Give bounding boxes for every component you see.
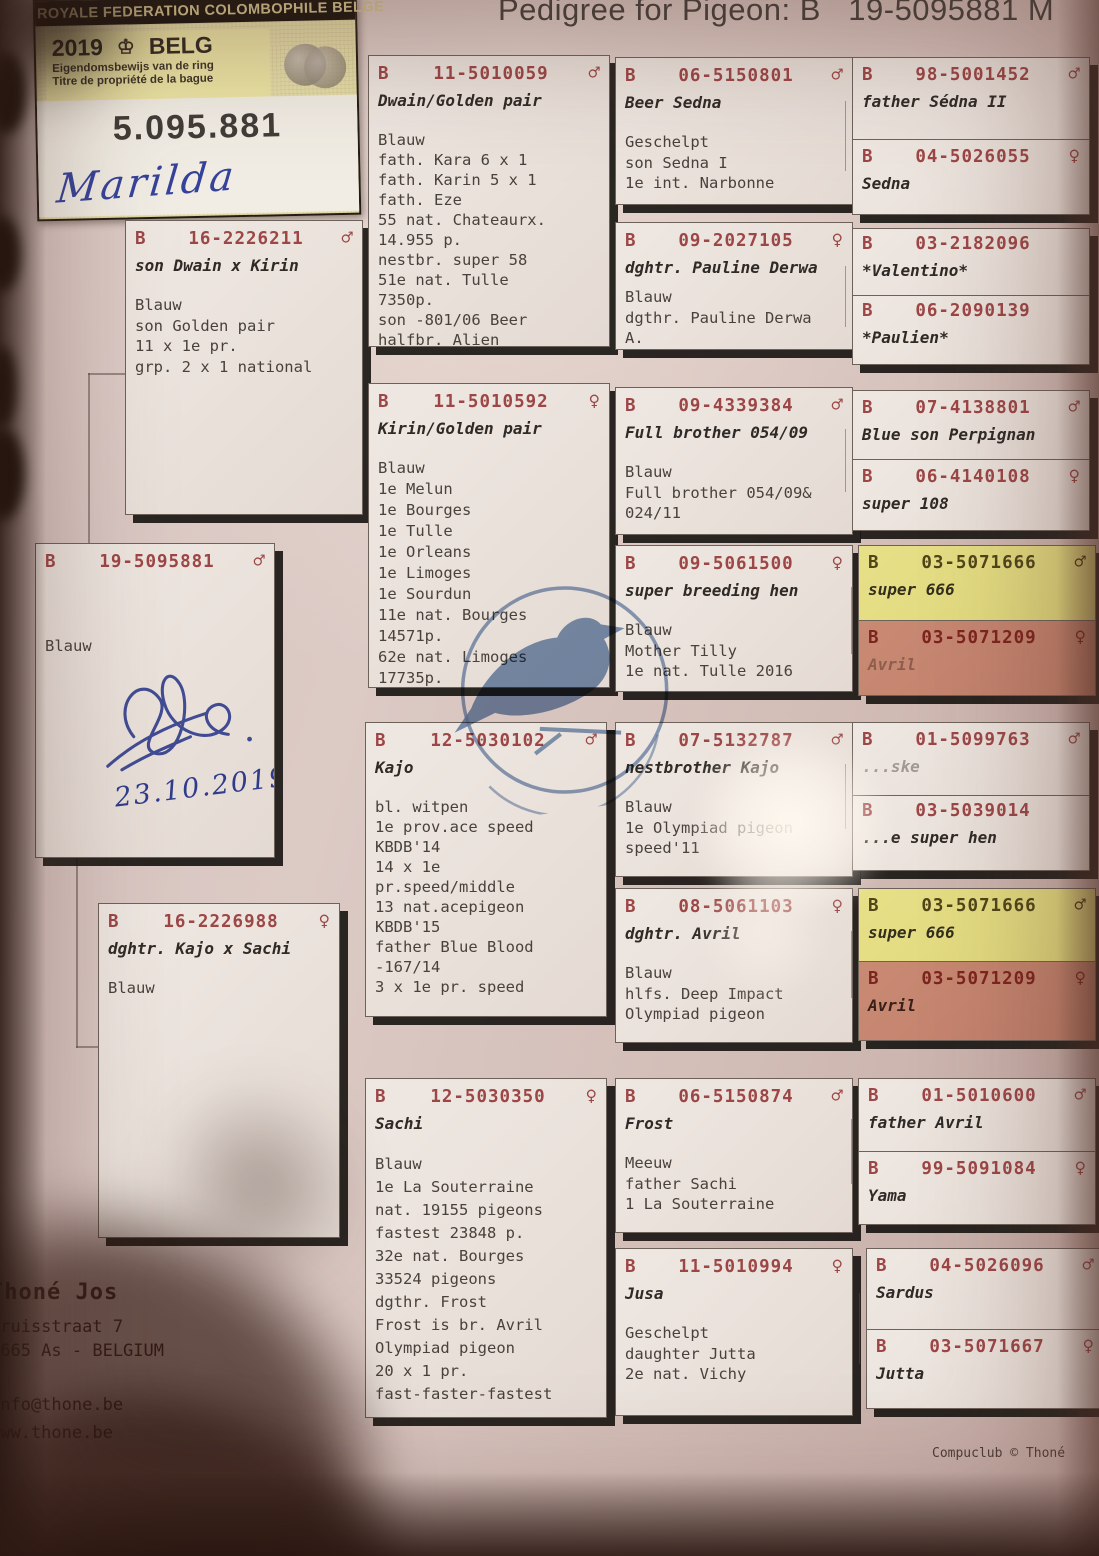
pigeon-details: Blauw son Golden pair 11 x 1e pr. grp. 2… — [135, 295, 353, 377]
ring-number: 01-5010600 — [894, 1086, 1064, 1106]
pigeon-name: father Avril — [868, 1113, 1086, 1132]
pigeon-name: Sardus — [876, 1283, 1094, 1302]
ring-number-panel: 5.095.881 Marilda — [37, 95, 359, 218]
owner-contact: info@thone.be www.thone.be — [0, 1391, 164, 1447]
pigeon-name: *Valentino* — [862, 261, 1080, 280]
country-code: B — [862, 147, 888, 167]
connector-line — [76, 858, 78, 1048]
pigeon-name: Avril — [868, 655, 1086, 674]
ring-row: B16-2226988♀ — [108, 910, 330, 932]
ring-number: 5.095.881 — [37, 105, 358, 151]
pigeon-name: Blue son Perpignan — [862, 425, 1080, 444]
pigeon-name: dghtr. Kajo x Sachi — [108, 939, 330, 958]
ring-row: B06-5150874♂ — [625, 1085, 843, 1107]
ring-number: 16-2226211 — [161, 229, 331, 249]
country-code: B — [45, 552, 71, 572]
pedigree-box-main: B19-5095881♂ Blauw 23.10.2019 — [35, 543, 275, 858]
ring-number: 08-5061103 — [651, 897, 821, 917]
pigeon-name: Full brother 054/09 — [625, 423, 843, 442]
pigeon-name: Frost — [625, 1114, 843, 1133]
male-icon: ♂ — [1064, 894, 1086, 916]
country-code: B — [625, 231, 651, 251]
country-code: B — [862, 234, 888, 254]
ring-number: 03-2182096 — [888, 234, 1058, 254]
gen4-pair-sedna: B98-5001452♂ father Sédna II B04-5026055… — [852, 57, 1090, 215]
ring-number: 98-5001452 — [888, 65, 1058, 85]
owner-name: Thoné Jos — [0, 1280, 164, 1305]
female-icon: ♀ — [821, 552, 843, 574]
ring-number: 12-5030350 — [401, 1087, 575, 1107]
gen4-pair-sardus: B04-5026096♂ Sardus B03-5071667♀ Jutta — [866, 1248, 1099, 1409]
ring-number: 09-4339384 — [651, 396, 821, 416]
ring-row: B11-5010994♀ — [625, 1255, 843, 1277]
male-icon: ♂ — [821, 729, 843, 751]
pigeon-name: Sedna — [862, 174, 1080, 193]
ring-number: 04-5026055 — [888, 147, 1058, 167]
ring-number: 01-5099763 — [888, 730, 1058, 750]
ring-row: B09-2027105♀ — [625, 229, 843, 251]
country-code: B — [375, 1087, 401, 1107]
country-code: B — [862, 801, 888, 821]
ring-row: B07-4138801♂ — [862, 396, 1080, 418]
country-code: B — [876, 1337, 902, 1357]
ring-number: 06-5150801 — [651, 66, 821, 86]
pedigree-box-sachi: B12-5030350♀ Sachi Blauw 1e La Souterrai… — [365, 1078, 607, 1418]
federation-header: ROYALE FEDERATION COLOMBOPHILE BELGE — [35, 0, 355, 26]
stamp-branch — [532, 718, 622, 754]
pigeon-name: Avril — [868, 996, 1086, 1015]
pigeon-details: Geschelpt son Sedna I 1e int. Narbonne — [625, 132, 843, 194]
pedigree-box-beer-sedna: B06-5150801♂ Beer Sedna Geschelpt son Se… — [615, 57, 853, 205]
pigeon-details: Blauw Full brother 054/09& 024/11 — [625, 462, 843, 524]
pigeon-name: Dwain/Golden pair — [378, 91, 600, 110]
pedigree-box-perpignan: B07-4138801♂ Blue son Perpignan — [852, 390, 1090, 460]
female-icon: ♀ — [1072, 1335, 1094, 1357]
ring-number: 03-5071667 — [902, 1337, 1072, 1357]
ring-row: B03-5071666♂ — [868, 551, 1086, 573]
country-code: B — [868, 628, 894, 648]
male-icon: ♂ — [1064, 1084, 1086, 1106]
gen4-pair-super666-b: B03-5071666♂ super 666 B03-5071209♀ Avri… — [858, 888, 1096, 1041]
country-code: B — [876, 1256, 902, 1276]
pedigree-box-dwain: B11-5010059♂ Dwain/Golden pair Blauw fat… — [368, 55, 610, 347]
pedigree-box-valentino: B03-2182096 *Valentino* — [852, 228, 1090, 296]
pedigree-box-fullbrother: B09-4339384♂ Full brother 054/09 Blauw F… — [615, 387, 853, 535]
gen4-pair-perpignan: B07-4138801♂ Blue son Perpignan B06-4140… — [852, 390, 1090, 531]
ring-row: B09-4339384♂ — [625, 394, 843, 416]
female-icon: ♀ — [821, 895, 843, 917]
male-icon: ♂ — [1064, 551, 1086, 573]
ring-number: 06-2090139 — [888, 301, 1058, 321]
male-icon: ♂ — [331, 227, 353, 249]
ring-number: 99-5091084 — [894, 1159, 1064, 1179]
pedigree-box-super666-b: B03-5071666♂ super 666 — [858, 888, 1096, 962]
pigeon-stamp-icon — [400, 555, 730, 829]
pigeon-name: dghtr. Pauline Derwa — [625, 258, 843, 277]
male-icon: ♂ — [821, 1085, 843, 1107]
ring-row: B03-5039014 — [862, 801, 1080, 821]
pigeon-details: Blauw hlfs. Deep Impact Olympiad pigeon — [625, 963, 843, 1025]
pedigree-box-5039014: B03-5039014 ...e super hen — [852, 795, 1090, 871]
ring-row: B03-5071667♀ — [876, 1335, 1094, 1357]
female-icon: ♀ — [1058, 145, 1080, 167]
ring-row: B03-5071209♀ — [868, 967, 1086, 989]
crown-icon: ♔ — [117, 34, 135, 59]
pigeon-details: bl. witpen 1e prov.ace speed KBDB'14 14 … — [375, 797, 597, 997]
pigeon-name: dghtr. Avril — [625, 924, 843, 943]
ring-row: B99-5091084♀ — [868, 1157, 1086, 1179]
ring-row: B11-5010592♀ — [378, 390, 600, 412]
pigeon-details: Blauw 1e Olympiad pigeon speed'11 — [625, 797, 843, 859]
pigeon-details: Geschelpt daughter Jutta 2e nat. Vichy — [625, 1323, 843, 1385]
ring-row: B03-2182096 — [862, 234, 1080, 254]
connector-line — [88, 373, 90, 545]
ring-number: 03-5071209 — [894, 969, 1064, 989]
pigeon-name: super 666 — [868, 580, 1086, 599]
ring-row: B11-5010059♂ — [378, 62, 600, 84]
male-icon: ♂ — [1072, 1254, 1094, 1276]
pedigree-box-paulien: B06-2090139 *Paulien* — [852, 295, 1090, 365]
pigeon-details: Blauw dgthr. Pauline Derwa A. — [625, 287, 843, 349]
pigeon-name: *Paulien* — [862, 328, 1080, 347]
pedigree-box-yama: B99-5091084♀ Yama — [858, 1151, 1096, 1225]
country-code: B — [868, 1086, 894, 1106]
ring-row: B98-5001452♂ — [862, 63, 1080, 85]
pigeon-name: Jutta — [876, 1364, 1094, 1383]
pedigree-photo: Pedigree for Pigeon: B 19-5095881 M ROYA… — [0, 0, 1099, 1556]
ring-row: B03-5071209♀ — [868, 626, 1086, 648]
pedigree-box-super108: B06-4140108♀ super 108 — [852, 459, 1090, 531]
country-code: B — [862, 467, 888, 487]
country-code: B — [135, 229, 161, 249]
female-icon: ♀ — [1064, 626, 1086, 648]
country-code: B — [868, 896, 894, 916]
connector-line — [76, 1046, 100, 1048]
country-code: B — [862, 301, 888, 321]
female-icon: ♀ — [578, 390, 600, 412]
ring-number: 11-5010059 — [404, 64, 578, 84]
pedigree-box-sedna2-father: B98-5001452♂ father Sédna II — [852, 57, 1090, 140]
country-code: B — [625, 66, 651, 86]
country-code: B — [378, 64, 404, 84]
pedigree-box-5099763: B01-5099763♂ ...ske — [852, 722, 1090, 796]
male-icon: ♂ — [821, 64, 843, 86]
gen4-pair-5099763: B01-5099763♂ ...ske B03-5039014 ...e sup… — [852, 722, 1090, 871]
pedigree-box-pauline: B09-2027105♀ dghtr. Pauline Derwa Blauw … — [615, 222, 853, 350]
pigeon-name: ...ske — [862, 757, 1080, 776]
ring-number: 06-5150874 — [651, 1087, 821, 1107]
foreground-object — [0, 216, 20, 292]
country-code: B — [375, 731, 401, 751]
pedigree-box-father: B16-2226211♂ son Dwain x Kirin Blauw son… — [125, 220, 363, 515]
pedigree-box-avril-b: B03-5071209♀ Avril — [858, 961, 1096, 1041]
pigeon-silhouette — [441, 612, 636, 732]
gen4-pair-avril-father: B01-5010600♂ father Avril B99-5091084♀ Y… — [858, 1078, 1096, 1225]
pedigree-box-sedna: B04-5026055♀ Sedna — [852, 139, 1090, 215]
pigeon-name: Yama — [868, 1186, 1086, 1205]
country-code: B — [625, 1087, 651, 1107]
pedigree-box-frost: B06-5150874♂ Frost Meeuw father Sachi 1 … — [615, 1078, 853, 1233]
ring-row: B19-5095881♂ — [45, 550, 265, 572]
female-icon: ♀ — [575, 1085, 597, 1107]
female-icon: ♀ — [821, 1255, 843, 1277]
female-icon: ♀ — [1064, 1157, 1086, 1179]
pedigree-box-avril-a: B03-5071209♀ Avril — [858, 620, 1096, 696]
medal-stamp-icon — [284, 43, 347, 90]
country-code: B — [862, 65, 888, 85]
pigeon-name: ...e super hen — [862, 828, 1080, 847]
pigeon-details: Meeuw father Sachi 1 La Souterraine — [625, 1153, 843, 1215]
country-code: B — [868, 1159, 894, 1179]
male-icon: ♂ — [578, 62, 600, 84]
ring-number: 16-2226988 — [134, 912, 308, 932]
male-icon: ♂ — [821, 394, 843, 416]
pigeon-details: Blauw — [108, 978, 330, 999]
female-icon: ♀ — [821, 229, 843, 251]
pedigree-box-jusa: B11-5010994♀ Jusa Geschelpt daughter Jut… — [615, 1248, 853, 1416]
ring-number: 03-5071666 — [894, 896, 1064, 916]
ring-number: 07-4138801 — [888, 398, 1058, 418]
connector-line — [88, 373, 128, 375]
pigeon-name: Beer Sedna — [625, 93, 843, 112]
ring-row: B08-5061103♀ — [625, 895, 843, 917]
gen4-pair-valentino: B03-2182096 *Valentino* B06-2090139 *Pau… — [852, 228, 1090, 365]
male-icon: ♂ — [1058, 728, 1080, 750]
pigeon-name: Sachi — [375, 1114, 597, 1133]
male-icon: ♂ — [1058, 396, 1080, 418]
photo-edge-shadow — [0, 1472, 1099, 1556]
ring-number: 11-5010592 — [404, 392, 578, 412]
ring-number: 03-5071666 — [894, 553, 1064, 573]
ring-year: 2019 — [51, 34, 103, 62]
pigeon-details: Blauw fath. Kara 6 x 1 fath. Karin 5 x 1… — [378, 130, 600, 347]
female-icon: ♀ — [1064, 967, 1086, 989]
pigeon-details: Blauw 1e La Souterraine nat. 19155 pigeo… — [375, 1153, 597, 1406]
foreground-object — [0, 346, 16, 428]
pigeon-name: super 108 — [862, 494, 1080, 513]
pigeon-name: Kirin/Golden pair — [378, 419, 600, 438]
female-icon: ♀ — [1058, 465, 1080, 487]
pigeon-name: father Sédna II — [862, 92, 1080, 111]
pedigree-box-avril-father: B01-5010600♂ father Avril — [858, 1078, 1096, 1152]
ring-country: BELG — [149, 32, 213, 60]
ring-row: B12-5030350♀ — [375, 1085, 597, 1107]
country-code: B — [862, 398, 888, 418]
ring-number: 06-4140108 — [888, 467, 1058, 487]
male-icon: ♂ — [243, 550, 265, 572]
country-code: B — [868, 969, 894, 989]
pedigree-box-sardus: B04-5026096♂ Sardus — [866, 1248, 1099, 1330]
pedigree-box-mother: B16-2226988♀ dghtr. Kajo x Sachi Blauw — [98, 903, 340, 1238]
ring-number: 04-5026096 — [902, 1256, 1072, 1276]
country-code: B — [108, 912, 134, 932]
male-icon: ♂ — [1058, 63, 1080, 85]
ring-card-band: 2019 ♔ BELG Eigendomsbewijs van de ring … — [45, 28, 270, 103]
country-code: B — [625, 897, 651, 917]
country-code: B — [625, 396, 651, 416]
signature-scribble — [96, 654, 266, 784]
ring-ownership-card: ROYALE FEDERATION COLOMBOPHILE BELGE 201… — [33, 0, 362, 221]
foreground-object — [0, 428, 24, 520]
ring-row: B06-2090139 — [862, 301, 1080, 321]
owner-address: Kruisstraat 7 3665 As - BELGIUM — [0, 1315, 164, 1363]
country-code: B — [862, 730, 888, 750]
country-code: B — [868, 553, 894, 573]
pedigree-box-jutta: B03-5071667♀ Jutta — [866, 1329, 1099, 1409]
pigeon-name: super 666 — [868, 923, 1086, 942]
ring-row: B03-5071666♂ — [868, 894, 1086, 916]
owner-block: Thoné Jos Kruisstraat 7 3665 As - BELGIU… — [0, 1280, 164, 1447]
ring-number: 03-5039014 — [888, 801, 1058, 821]
ring-year-row: 2019 ♔ BELG — [51, 31, 264, 62]
ring-number: 11-5010994 — [651, 1257, 821, 1277]
ring-row: B04-5026096♂ — [876, 1254, 1094, 1276]
ring-row: B01-5010600♂ — [868, 1084, 1086, 1106]
ring-row: B06-4140108♀ — [862, 465, 1080, 487]
country-code: B — [378, 392, 404, 412]
pigeon-name: son Dwain x Kirin — [135, 256, 353, 275]
pedigree-box-avril-daughter: B08-5061103♀ dghtr. Avril Blauw hlfs. De… — [615, 888, 853, 1043]
ring-row: B16-2226211♂ — [135, 227, 353, 249]
ring-row: B01-5099763♂ — [862, 728, 1080, 750]
page-title: Pedigree for Pigeon: B 19-5095881 M — [498, 0, 1098, 28]
female-icon: ♀ — [308, 910, 330, 932]
pedigree-box-super666-a: B03-5071666♂ super 666 — [858, 545, 1096, 621]
pigeon-name: Jusa — [625, 1284, 843, 1303]
ring-row: B06-5150801♂ — [625, 64, 843, 86]
ring-row: B04-5026055♀ — [862, 145, 1080, 167]
gen4-pair-super666-a: B03-5071666♂ super 666 B03-5071209♀ Avri… — [858, 545, 1096, 696]
software-credit: Compuclub © Thoné — [932, 1446, 1065, 1461]
ring-number: 19-5095881 — [71, 552, 243, 572]
ring-number: 03-5071209 — [894, 628, 1064, 648]
handwritten-name: Marilda — [55, 145, 349, 213]
country-code: B — [625, 1257, 651, 1277]
foreground-object — [0, 52, 26, 134]
ring-number: 09-2027105 — [651, 231, 821, 251]
